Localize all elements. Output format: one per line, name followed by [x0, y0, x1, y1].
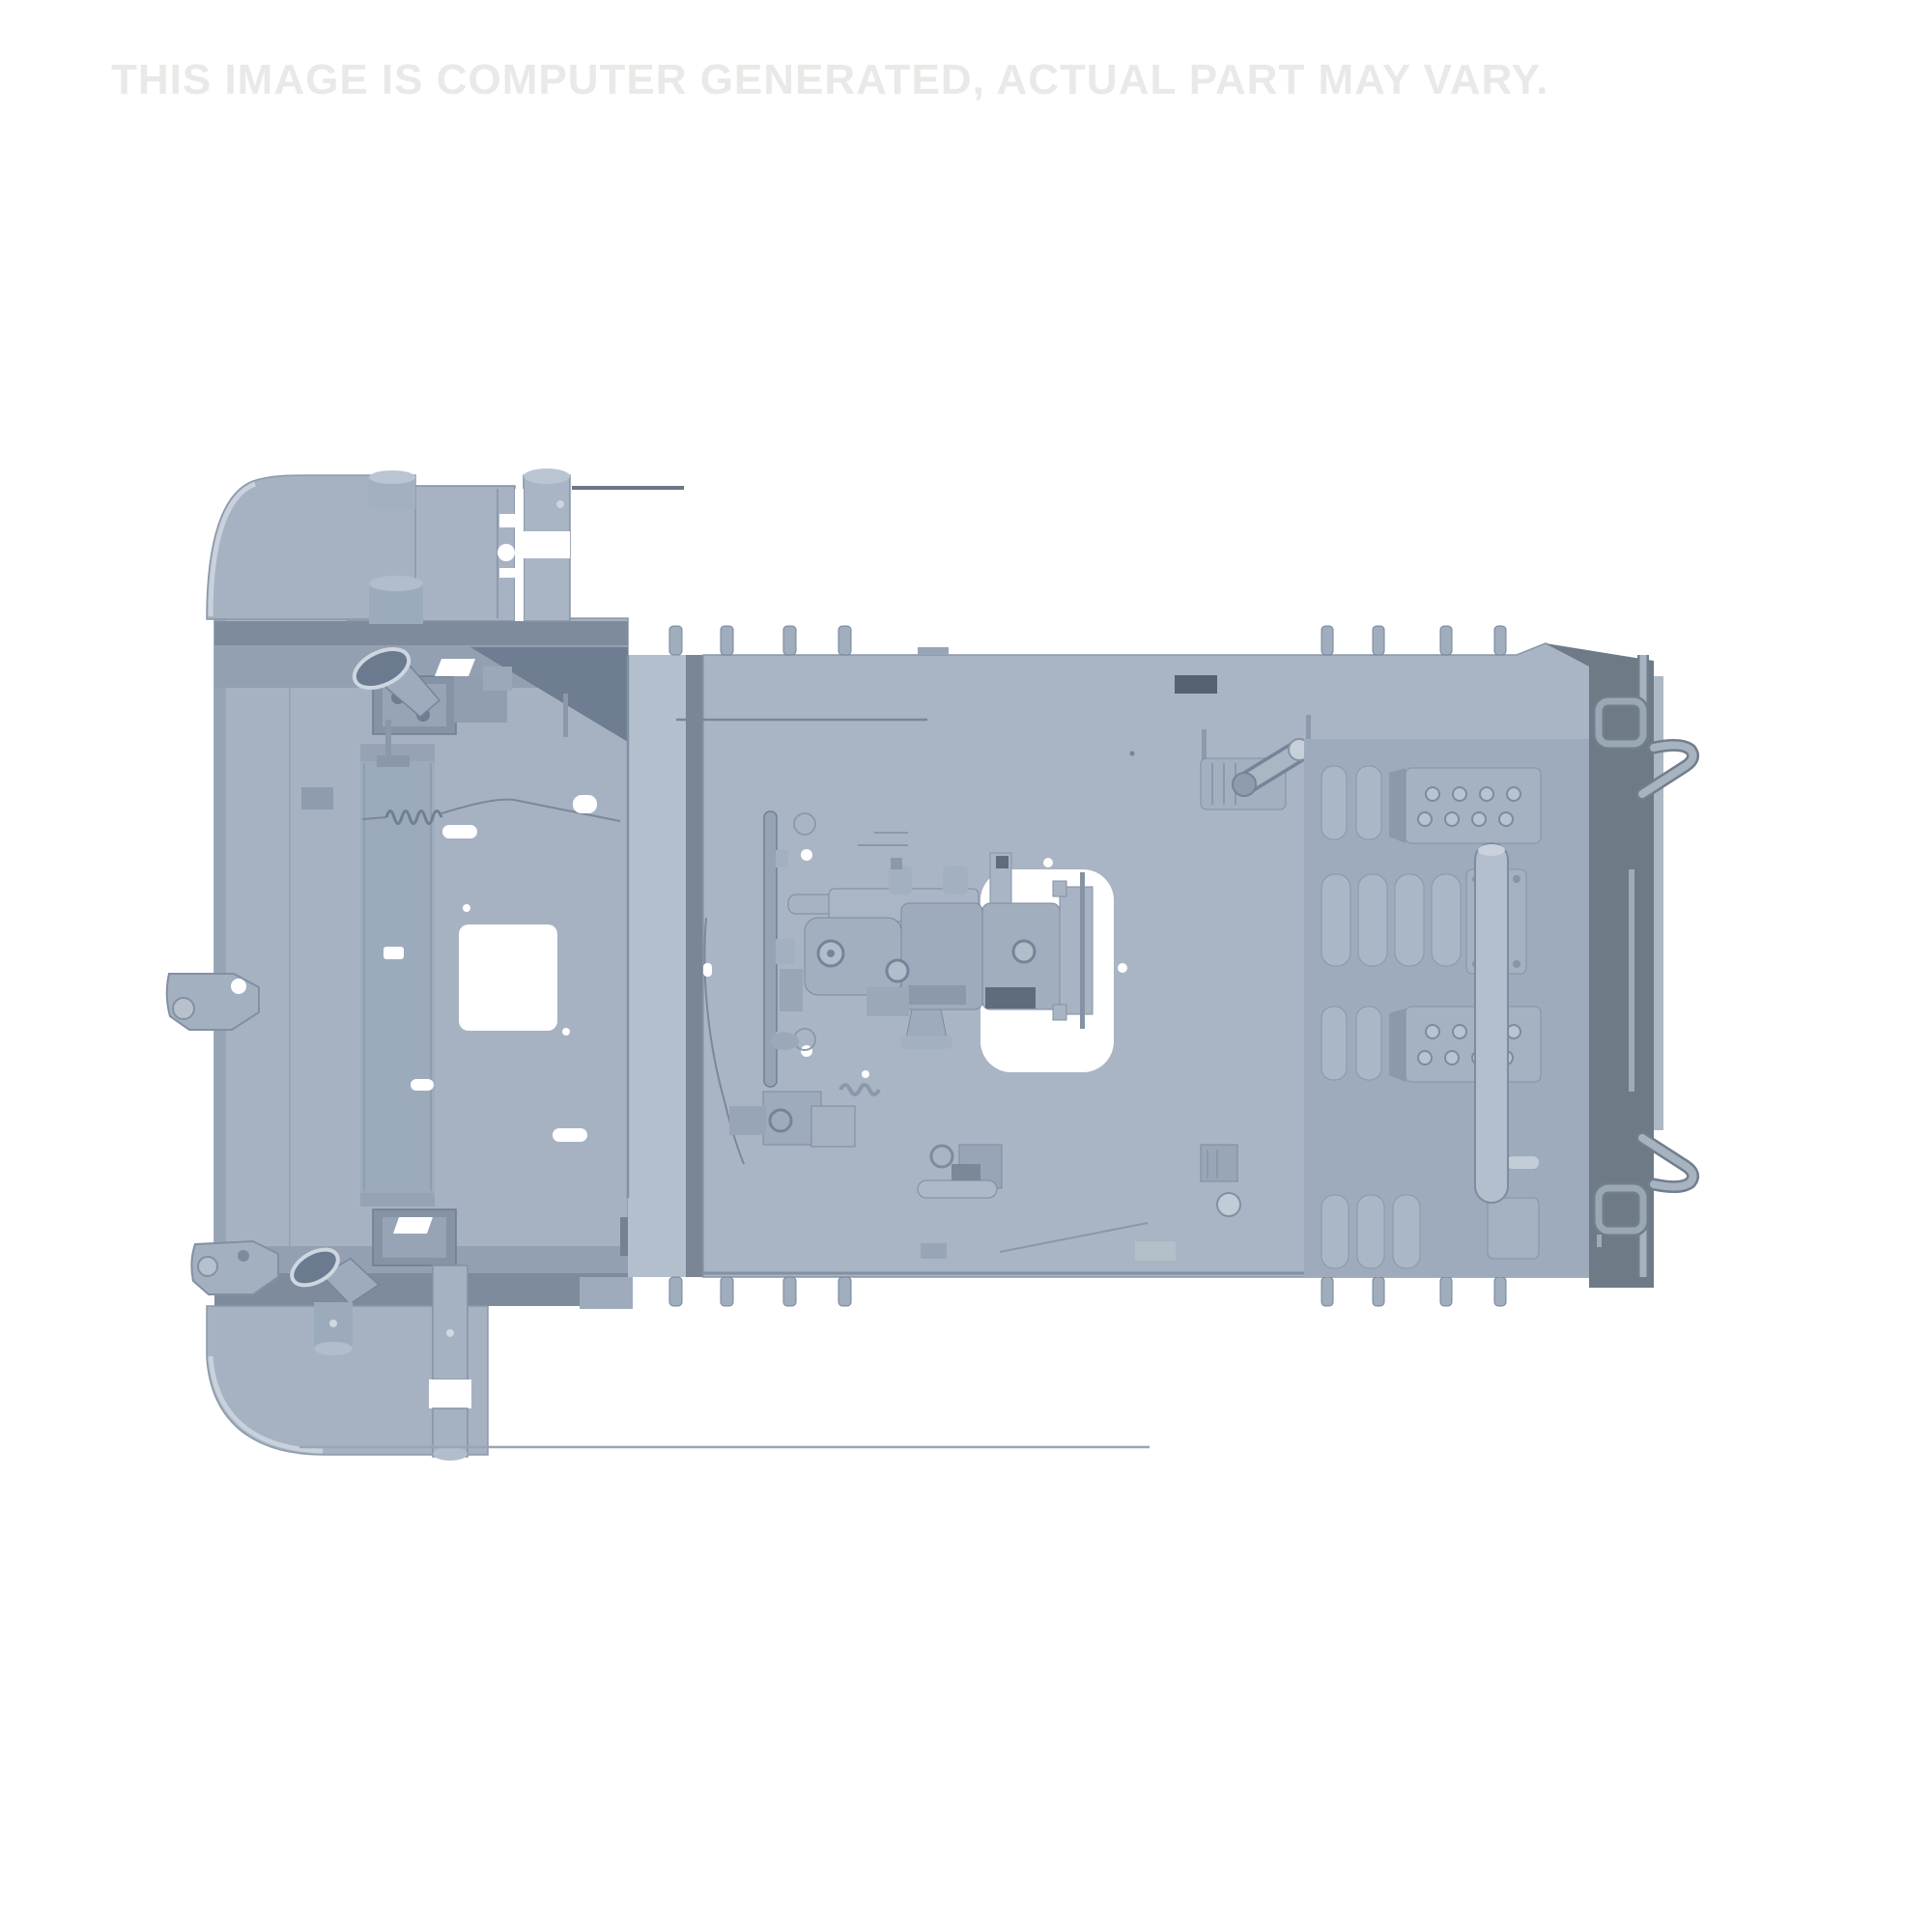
bracket-hole [238, 1250, 249, 1262]
cylinder-top [369, 576, 423, 591]
engine-funnel [906, 1009, 947, 1038]
bracket-hole [231, 979, 246, 994]
shelf-bracket [377, 755, 410, 767]
bolt-hole [463, 904, 470, 912]
cylinder-bolt-hole [329, 1320, 337, 1327]
bolt-hole [801, 1045, 812, 1057]
footrest-area [1304, 739, 1589, 1277]
pedal-arm [918, 1180, 997, 1198]
engine-stub-small [891, 858, 902, 869]
engine-post-cap [996, 856, 1009, 868]
deck-edge-tab [918, 647, 949, 655]
output-flange [1060, 887, 1093, 1014]
plate-dot [1513, 960, 1520, 968]
cylinder-top [369, 470, 415, 484]
pad-wedge [1389, 1009, 1406, 1082]
pin [838, 626, 851, 655]
plate-d-cutout [573, 795, 597, 813]
bolt [1453, 787, 1466, 801]
pad-wedge [1389, 768, 1406, 843]
plate-bracket [301, 787, 333, 810]
bracket-ball-pin [173, 998, 194, 1019]
footrest-pad [1321, 1195, 1349, 1268]
shelf-white-slot [435, 659, 475, 676]
pedal-plate [729, 1106, 766, 1135]
bolt-hole [801, 849, 812, 861]
engine-lower-block [867, 987, 909, 1016]
deck-dot [1130, 752, 1135, 756]
plate-small-cutout [384, 947, 404, 959]
channel-slot [703, 963, 712, 977]
white-notch [499, 568, 515, 578]
pin [1440, 626, 1452, 655]
flange-disc-rod [1080, 872, 1085, 1029]
pin [838, 1277, 851, 1306]
white-gap [515, 489, 524, 621]
vent-slot [1175, 675, 1217, 694]
engine-shade [908, 985, 966, 1005]
lift-cylinder [1475, 843, 1508, 1203]
plate-slot-cutout [442, 825, 477, 838]
white-gap [524, 531, 570, 558]
bolt-hole [562, 1028, 570, 1036]
pin [1373, 626, 1384, 655]
footrest-pad [1357, 1195, 1384, 1268]
pin [1373, 1277, 1384, 1306]
lift-cylinder-cap [1478, 844, 1505, 856]
engine-hanger [780, 969, 803, 1011]
pin [721, 1277, 733, 1306]
watermark-text: THIS IMAGE IS COMPUTER GENERATED, ACTUAL… [111, 56, 1548, 103]
bolt-plate [1406, 768, 1541, 843]
mounting-pins-bottom-left [669, 1277, 851, 1306]
top-shelf-edge [214, 621, 628, 645]
pedal-block [811, 1106, 855, 1147]
plate-square-cutout [459, 924, 557, 1031]
bolt [1472, 812, 1486, 826]
disc-hub [776, 939, 795, 964]
plate-left-edge [214, 618, 226, 1248]
deck-corner-step [580, 1277, 633, 1309]
pin [783, 626, 796, 655]
bolt [1507, 1025, 1520, 1038]
white-notch [499, 514, 515, 527]
pin [1494, 1277, 1506, 1306]
chassis-cad-render: THIS IMAGE IS COMPUTER GENERATED, ACTUAL… [0, 0, 1932, 1932]
pad-plate [1488, 1198, 1539, 1259]
cylinder-bottom [314, 1342, 353, 1355]
engine-bolt-boss [887, 960, 908, 981]
bolt-hole [1118, 963, 1127, 973]
cylinder-tall [433, 1265, 468, 1379]
main-deck-assembly [553, 626, 1693, 1309]
disc-hub [776, 850, 788, 867]
pin [1321, 1277, 1333, 1306]
shelf-white-slot [393, 1217, 433, 1234]
pin [1440, 1277, 1452, 1306]
white-gap [429, 1379, 471, 1408]
shelf-block-small [483, 667, 512, 691]
bolt-plate [1406, 1007, 1541, 1082]
white-notch [497, 544, 515, 561]
side-panel-slit [1629, 869, 1634, 1092]
radiator-cap-bottom [360, 1193, 435, 1207]
deck-left-lip [628, 655, 686, 1277]
pin [721, 626, 733, 655]
footrest-pad [1321, 1007, 1347, 1080]
mounting-pins-bottom-right [1321, 1277, 1506, 1306]
bolt [1426, 787, 1439, 801]
engine-stub [943, 866, 968, 895]
footrest-pad [1395, 874, 1424, 966]
pad-strip [1507, 1156, 1539, 1169]
cylinder-top [524, 469, 570, 484]
footrest-pad [1432, 874, 1461, 966]
engine-bolt-center [827, 950, 835, 957]
product-render-canvas: THIS IMAGE IS COMPUTER GENERATED, ACTUAL… [0, 0, 1932, 1932]
footrest-pad [1321, 766, 1347, 839]
pin [1321, 626, 1333, 655]
flange-notch [1053, 881, 1066, 896]
pedal-bell [770, 1033, 799, 1050]
gearbox-shadow [985, 987, 1036, 1009]
shelf-pin [385, 720, 391, 758]
mounting-pins-top-right [1321, 626, 1506, 655]
footrest-pad [1393, 1195, 1420, 1268]
bolt-hole [862, 1070, 869, 1078]
bolt [1507, 787, 1520, 801]
gearbox-boss [1013, 941, 1035, 962]
bolt [1418, 1051, 1432, 1065]
lip-slot [553, 1128, 587, 1142]
bolt [1445, 812, 1459, 826]
deck-bump-light [1135, 1241, 1176, 1261]
shelf-pin [563, 694, 568, 737]
bolt [1418, 812, 1432, 826]
tow-bracket-mid [167, 974, 259, 1030]
lever-mount [1201, 1145, 1237, 1181]
cylinder-bolt-hole [446, 1329, 454, 1337]
pin [669, 1277, 682, 1306]
bolt-hole [1043, 858, 1053, 867]
engine-foot [900, 1036, 952, 1049]
deck-left-channel [686, 655, 703, 1277]
mounting-pins-top-left [669, 626, 851, 655]
bolt [1499, 812, 1513, 826]
pin [669, 626, 682, 655]
cylinder-bottom [433, 1447, 468, 1461]
tow-bracket-bottom [191, 1241, 278, 1294]
plate-dot [1513, 875, 1520, 883]
footrest-pad [1321, 874, 1350, 966]
pin [783, 1277, 796, 1306]
pin [1494, 626, 1506, 655]
deck-bump [921, 1243, 947, 1259]
bolt [1453, 1025, 1466, 1038]
side-panel-slit-small [1597, 1235, 1602, 1247]
flange-notch [1053, 1005, 1066, 1020]
bolt [1445, 1051, 1459, 1065]
radiator-core [360, 761, 435, 1193]
bolt [1480, 787, 1493, 801]
cylinder-bolt-hole [556, 500, 564, 508]
lever-foot [1233, 773, 1256, 796]
bracket-ball-pin [198, 1257, 217, 1276]
footrest-pad [1356, 766, 1381, 839]
ball-knob [1217, 1193, 1240, 1216]
footrest-pad [1356, 1007, 1381, 1080]
plate-slot-cutout-lower [411, 1079, 434, 1091]
engine-stub [889, 866, 912, 895]
bolt [1426, 1025, 1439, 1038]
footrest-pad [1358, 874, 1387, 966]
